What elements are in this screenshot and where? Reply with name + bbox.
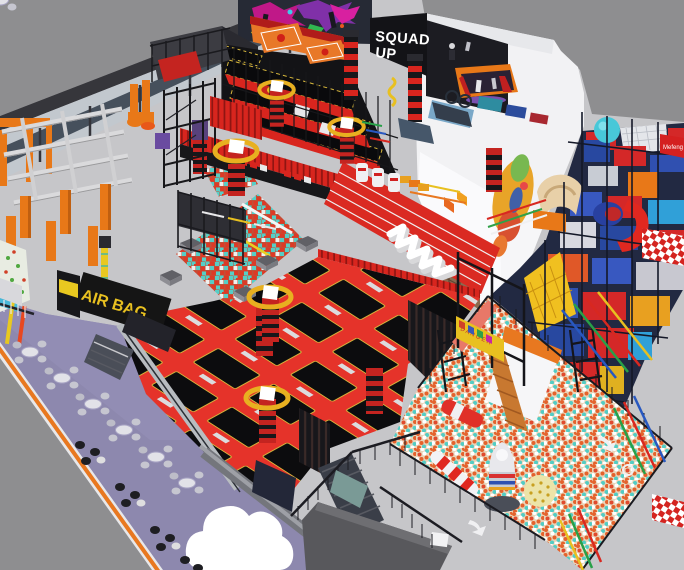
svg-text:Mefeng: Mefeng	[663, 145, 683, 151]
svg-text:UP: UP	[375, 45, 398, 63]
